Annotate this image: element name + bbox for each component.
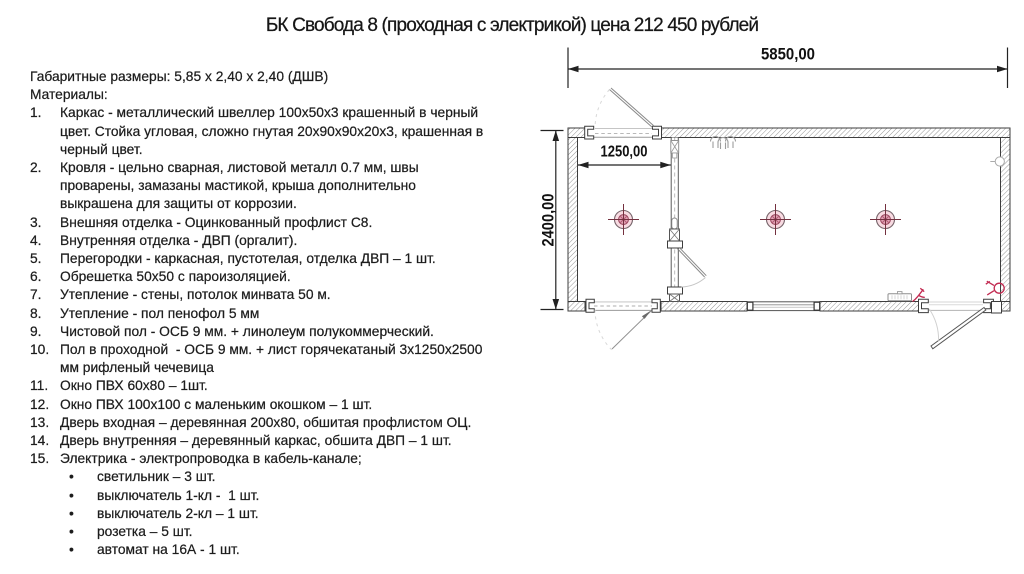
svg-text:2400,00: 2400,00 <box>540 194 558 247</box>
svg-text:1250,00: 1250,00 <box>601 144 648 161</box>
svg-text:5850,00: 5850,00 <box>761 46 815 64</box>
